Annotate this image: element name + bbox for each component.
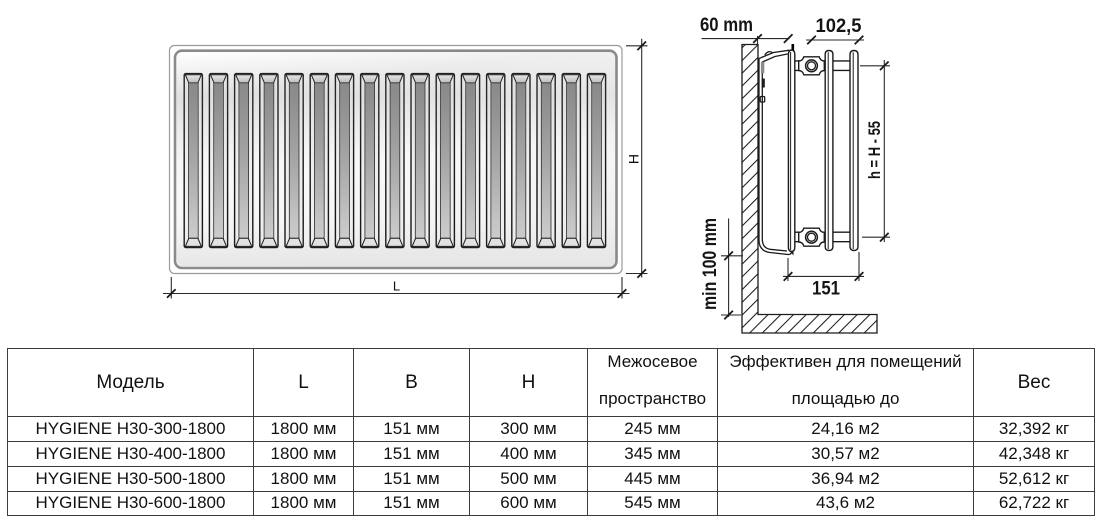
svg-text:60 mm: 60 mm bbox=[700, 15, 753, 36]
svg-text:min 100 mm: min 100 mm bbox=[700, 218, 721, 310]
svg-text:L: L bbox=[393, 279, 400, 294]
svg-text:151: 151 bbox=[812, 279, 840, 300]
svg-text:102,5: 102,5 bbox=[816, 16, 862, 37]
svg-text:h = H - 55: h = H - 55 bbox=[865, 121, 884, 179]
svg-text:H: H bbox=[626, 154, 642, 164]
